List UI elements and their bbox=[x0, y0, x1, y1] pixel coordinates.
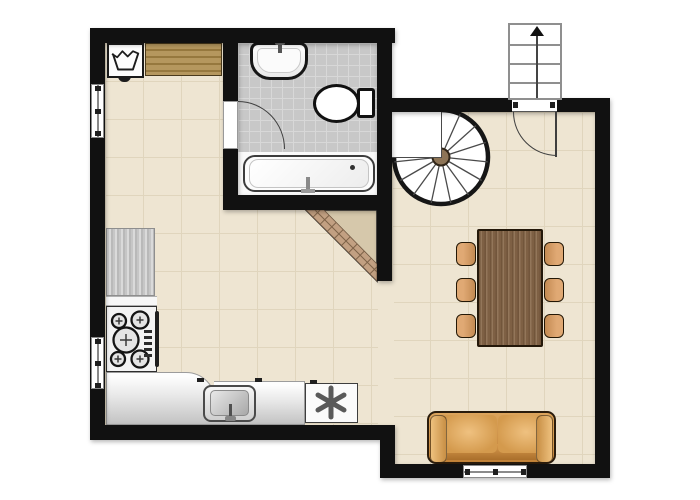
stair-direction-line bbox=[536, 34, 538, 98]
stair-tread-line bbox=[510, 82, 560, 84]
window-tick bbox=[465, 469, 470, 475]
sofa-arm bbox=[430, 415, 447, 463]
dining-table bbox=[477, 229, 543, 347]
wall-top-left-block bbox=[90, 28, 395, 43]
wall-step bbox=[380, 425, 395, 478]
kitchen-counter-left bbox=[106, 228, 155, 296]
wall-right bbox=[595, 98, 610, 478]
cabinet-handle bbox=[197, 378, 204, 382]
stove-knob bbox=[144, 336, 152, 339]
asterisk-appliance bbox=[305, 383, 358, 423]
toilet bbox=[313, 84, 360, 123]
stair-tread-line bbox=[510, 63, 560, 65]
wall-right-top bbox=[392, 98, 610, 112]
window-tick bbox=[95, 131, 101, 136]
bathtub-drain bbox=[350, 165, 355, 170]
window-left-upper bbox=[91, 84, 104, 138]
counter-gap bbox=[106, 296, 157, 306]
dining-chair bbox=[544, 314, 564, 338]
stove bbox=[106, 306, 157, 372]
laundry-icon bbox=[109, 46, 142, 73]
stove-knob bbox=[144, 348, 152, 351]
dining-chair bbox=[456, 314, 476, 338]
faucet-stem bbox=[278, 45, 282, 53]
cabinet-handle bbox=[310, 380, 317, 384]
window-left-lower bbox=[91, 337, 104, 389]
window-tick bbox=[95, 361, 101, 366]
bathtub-faucet-base bbox=[301, 189, 315, 193]
dining-chair bbox=[544, 278, 564, 302]
dining-chair bbox=[544, 242, 564, 266]
bathroom-door-opening bbox=[223, 101, 238, 149]
stove-knob bbox=[144, 330, 152, 333]
threshold-tick bbox=[550, 102, 555, 108]
spiral-staircase-landing bbox=[390, 112, 442, 158]
entrance-threshold bbox=[512, 98, 557, 112]
up-arrow-icon bbox=[530, 26, 544, 36]
floor-plan bbox=[0, 0, 700, 500]
dining-chair bbox=[456, 278, 476, 302]
window-tick bbox=[95, 109, 101, 114]
wall-bottom-left-block bbox=[90, 425, 395, 440]
sofa bbox=[427, 411, 556, 464]
window-tick bbox=[95, 86, 101, 91]
washing-machine bbox=[107, 43, 144, 78]
cabinet-handle bbox=[255, 378, 262, 382]
oven-handle bbox=[155, 311, 159, 367]
dining-chair bbox=[456, 242, 476, 266]
kitchen-faucet-base bbox=[225, 416, 236, 421]
window-tick bbox=[521, 469, 526, 475]
sofa-cushion bbox=[441, 415, 497, 453]
threshold-tick bbox=[513, 102, 518, 108]
wall-bathroom-bottom bbox=[223, 195, 392, 210]
window-tick bbox=[95, 339, 101, 344]
window-tick bbox=[95, 383, 101, 388]
wooden-shelf bbox=[145, 43, 222, 76]
stair-tread-line bbox=[510, 44, 560, 46]
window-tick bbox=[493, 469, 498, 475]
entrance-door-leaf bbox=[555, 112, 557, 157]
stove-knob bbox=[144, 342, 152, 345]
wall-bathroom-right bbox=[377, 28, 392, 281]
entrance-stairs bbox=[508, 23, 562, 100]
floor-passage bbox=[378, 281, 394, 425]
sofa-arm bbox=[536, 415, 553, 463]
asterisk-icon bbox=[306, 384, 356, 421]
stove-knob bbox=[144, 354, 152, 357]
window-bottom bbox=[463, 465, 527, 478]
